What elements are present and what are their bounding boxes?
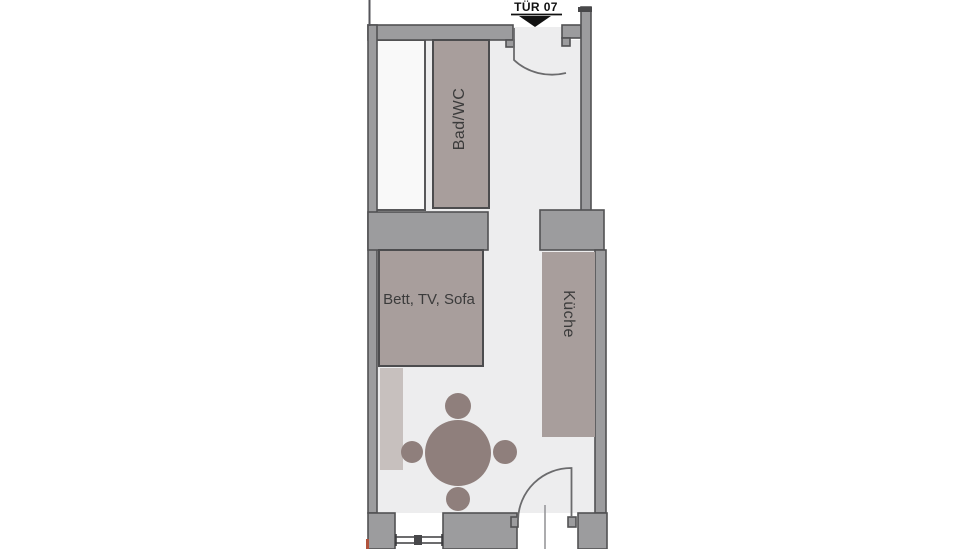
entry-door-arrow-icon xyxy=(519,16,551,27)
entry-door-label: TÜR 07 xyxy=(514,0,558,14)
floor-corridor-gap xyxy=(488,212,540,250)
label-living-sleeping: Bett, TV, Sofa xyxy=(383,291,475,308)
chair-bottom xyxy=(446,487,470,511)
floor-plan-svg: TÜR 07 Bad/WC Bett, TV, Sofa Küche xyxy=(0,0,975,549)
window-center-tick xyxy=(414,535,422,545)
wall-upper-right-cap xyxy=(578,7,592,12)
bed-tv-sofa-block xyxy=(379,250,483,366)
door-jamb-square-left xyxy=(511,517,518,527)
strip-room xyxy=(376,40,425,210)
wall-bottom-left-block xyxy=(368,513,395,549)
accent-red-mark xyxy=(366,539,369,549)
wall-left xyxy=(368,25,377,513)
wall-entry-right-stub xyxy=(562,25,581,38)
wall-bottom-right-block xyxy=(578,513,607,549)
floor-entry-doorway xyxy=(513,27,562,41)
wall-right-main xyxy=(595,250,606,513)
chair-left xyxy=(401,441,423,463)
wall-middle-band xyxy=(368,212,488,250)
floor-plan-image: TÜR 07 Bad/WC Bett, TV, Sofa Küche xyxy=(0,0,975,549)
door-jamb-square-right xyxy=(568,517,576,527)
wall-upper-right xyxy=(581,7,591,212)
wall-entry-left-jamb-step xyxy=(506,40,514,47)
wall-kitchen-top-block xyxy=(540,210,604,250)
wall-entry-right-step xyxy=(562,38,570,46)
wall-top-band xyxy=(368,25,513,40)
label-bathroom: Bad/WC xyxy=(451,88,468,151)
entry-door-label-group: TÜR 07 xyxy=(511,0,562,27)
dining-table-circle xyxy=(425,420,491,486)
chair-right xyxy=(493,440,517,464)
chair-top xyxy=(445,393,471,419)
wall-bottom-middle-block xyxy=(443,513,517,549)
label-kitchen: Küche xyxy=(560,290,577,338)
beige-strip xyxy=(380,368,403,470)
kitchen-block xyxy=(542,252,595,437)
